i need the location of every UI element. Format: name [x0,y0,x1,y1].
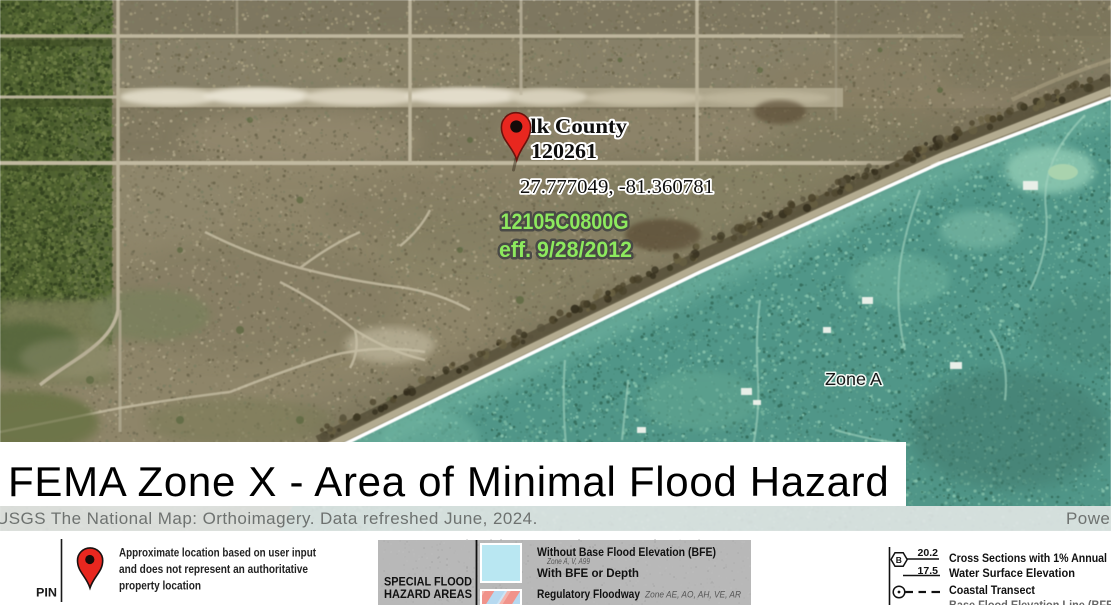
svg-text:Approximate location based on: Approximate location based on user input [119,548,316,560]
svg-text:Regulatory Floodway: Regulatory Floodway [537,589,641,601]
svg-text:Zone A: Zone A [825,369,882,389]
svg-text:and does not represent an auth: and does not represent an authoritative [119,564,308,576]
svg-text:HAZARD AREAS: HAZARD AREAS [384,589,472,601]
svg-text:SPECIAL FLOOD: SPECIAL FLOOD [384,577,472,589]
svg-text:Cross Sections with 1% Annual: Cross Sections with 1% Annual [949,553,1107,565]
svg-text:With BFE or Depth: With BFE or Depth [537,568,639,580]
svg-text:Coastal Transect: Coastal Transect [949,585,1035,597]
svg-text:Zone A, V, A99: Zone A, V, A99 [546,557,590,566]
svg-text:17.5: 17.5 [918,566,939,577]
svg-text:27.777049, -81.360781: 27.777049, -81.360781 [520,176,714,198]
svg-text:property location: property location [119,581,201,593]
svg-text:12105C0800G: 12105C0800G [501,209,629,234]
svg-text:PIN: PIN [36,586,57,600]
svg-text:B: B [896,555,902,565]
svg-text:Zone AE, AO, AH, VE, AR: Zone AE, AO, AH, VE, AR [644,590,741,600]
svg-text:20.2: 20.2 [918,548,939,559]
svg-text:Water Surface Elevation: Water Surface Elevation [949,568,1075,580]
svg-text:eff. 9/28/2012: eff. 9/28/2012 [499,237,632,262]
svg-text:Base Flood Elevation Line (BFE: Base Flood Elevation Line (BFE) [949,600,1111,605]
svg-text:120261: 120261 [531,139,597,163]
